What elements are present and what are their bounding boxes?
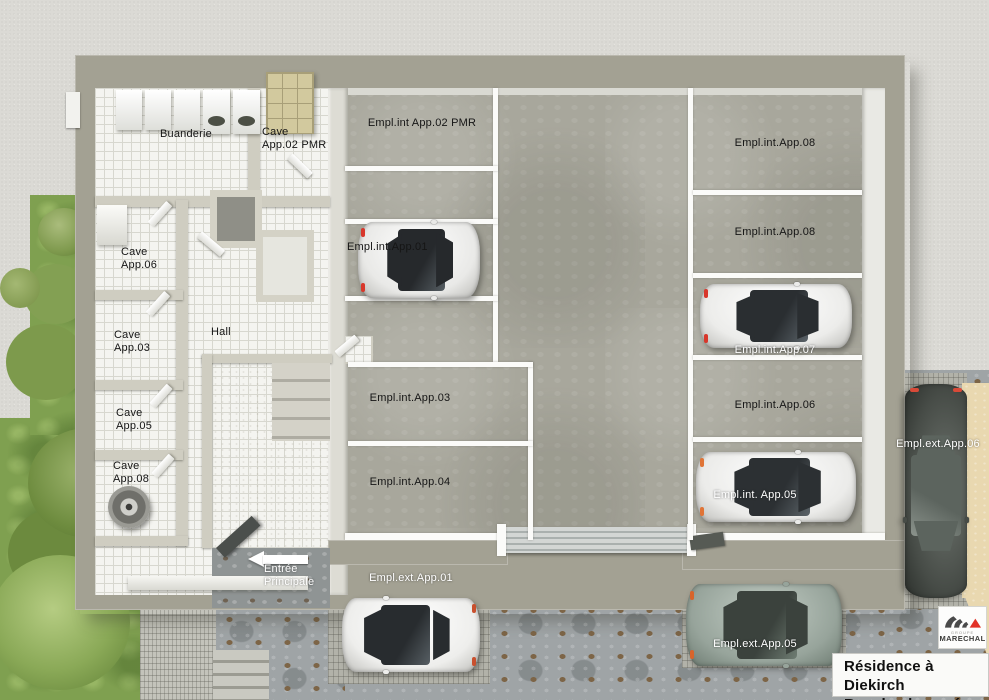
garage-bottom-wall: [328, 540, 508, 565]
label-empl-int-app02-pmr: Empl.int App.02 PMR: [368, 117, 476, 130]
parking-line: [348, 362, 533, 367]
label-empl-int-app04: Empl.int.App.04: [370, 476, 451, 489]
logo-name-text: MARECHAL: [939, 635, 986, 643]
car-taillight: [472, 604, 476, 613]
stair-flight: [212, 363, 272, 441]
car-taillight: [700, 507, 704, 516]
garage-inner-face-top: [345, 88, 862, 95]
label-empl-int-app03: Empl.int.App.03: [370, 392, 451, 405]
stair-enclosure-wall: [202, 354, 332, 363]
label-empl-int-app01: Empl.int.App.01: [347, 241, 428, 254]
lid: [208, 116, 225, 126]
parking-line: [493, 88, 498, 362]
label-buanderie: Buanderie: [160, 128, 212, 141]
car-mirror: [431, 296, 437, 300]
car-empl-int-app01: [358, 222, 480, 298]
parking-line: [345, 166, 498, 171]
car-taillight: [700, 458, 704, 467]
parking-line: [693, 190, 862, 195]
car-mirror: [795, 520, 801, 524]
parking-line: [528, 362, 533, 540]
washing-machine: [174, 90, 200, 130]
round-tank: [108, 486, 150, 528]
label-hall: Hall: [211, 326, 231, 339]
car-taillight: [704, 334, 708, 343]
car-taillight: [690, 650, 694, 659]
garage-door-jamb: [497, 524, 506, 556]
car-taillight: [472, 657, 476, 666]
label-entree-principale: Entrée Principale: [264, 563, 314, 589]
car-mirror: [903, 517, 907, 523]
label-cave-app05: Cave App.05: [116, 407, 152, 433]
label-cave-app08: Cave App.08: [113, 460, 149, 486]
wall: [95, 536, 188, 546]
garage-inner-face-right: [862, 88, 885, 540]
technical-room: [210, 190, 262, 248]
floor-plan-scene: Buanderie Cave App.02 PMR Cave App.06 Ca…: [0, 0, 989, 700]
label-empl-int-app08-top: Empl.int.App.08: [735, 137, 816, 150]
parking-line: [348, 441, 533, 446]
label-empl-ext-app01: Empl.ext.App.01: [369, 572, 453, 585]
wall: [176, 200, 188, 545]
car-taillight: [953, 388, 962, 392]
car-taillight: [361, 283, 365, 292]
car-mirror: [794, 282, 800, 286]
washing-machine: [116, 90, 142, 130]
shelving-rack: [266, 72, 314, 134]
car-taillight: [690, 591, 694, 600]
parking-line: [693, 273, 862, 278]
car-taillight: [910, 388, 919, 392]
label-empl-ext-app06: Empl.ext.App.06: [896, 438, 980, 451]
stair-flight: [272, 363, 330, 441]
car-mirror: [965, 517, 969, 523]
bush-small: [0, 268, 40, 308]
label-cave-app03: Cave App.03: [114, 329, 150, 355]
company-logo: GROUPE MARECHAL: [938, 606, 987, 649]
floor-title: Rez-de-chaussée: [844, 695, 988, 700]
label-cave-app02-pmr: Cave App.02 PMR: [262, 126, 326, 152]
washing-machine-toploader: [233, 90, 260, 134]
car-taillight: [704, 289, 708, 298]
title-block: Résidence à Diekirch Rez-de-chaussée: [832, 653, 989, 697]
technical-room: [256, 230, 314, 302]
car-empl-ext-app06: [905, 384, 967, 598]
exterior-cellar-door: [66, 92, 80, 128]
washing-machine: [145, 90, 171, 130]
car-mirror: [783, 664, 789, 668]
stair-landing: [212, 441, 330, 548]
label-cave-app06: Cave App.06: [121, 246, 157, 272]
car-glass: [381, 605, 431, 666]
arrow-head: [248, 551, 264, 567]
lid: [238, 116, 255, 126]
marechal-logo-icon: [944, 610, 982, 630]
car-empl-ext-app01: [342, 598, 480, 672]
parking-line: [688, 88, 693, 540]
car-mirror: [783, 582, 789, 586]
car-empl-ext-app05: [686, 584, 842, 666]
car-empl-int-app05: [696, 452, 856, 522]
exterior-steps: [213, 650, 269, 700]
parking-line: [693, 437, 862, 442]
label-empl-int-app08-mid: Empl.int.App.08: [735, 226, 816, 239]
label-empl-int-app07: Empl.int.App.07: [735, 344, 816, 357]
label-empl-ext-app05: Empl.ext.App.05: [713, 638, 797, 651]
car-taillight: [361, 228, 365, 237]
label-empl-int-app06: Empl.int.App.06: [735, 399, 816, 412]
car-empl-int-app07: [700, 284, 852, 348]
car-mirror: [431, 220, 437, 224]
car-mirror: [795, 450, 801, 454]
stair-enclosure-wall: [202, 354, 212, 548]
cabinet: [97, 205, 127, 245]
label-empl-int-app05: Empl.int. App.05: [713, 489, 796, 502]
project-title: Résidence à Diekirch: [844, 657, 988, 695]
